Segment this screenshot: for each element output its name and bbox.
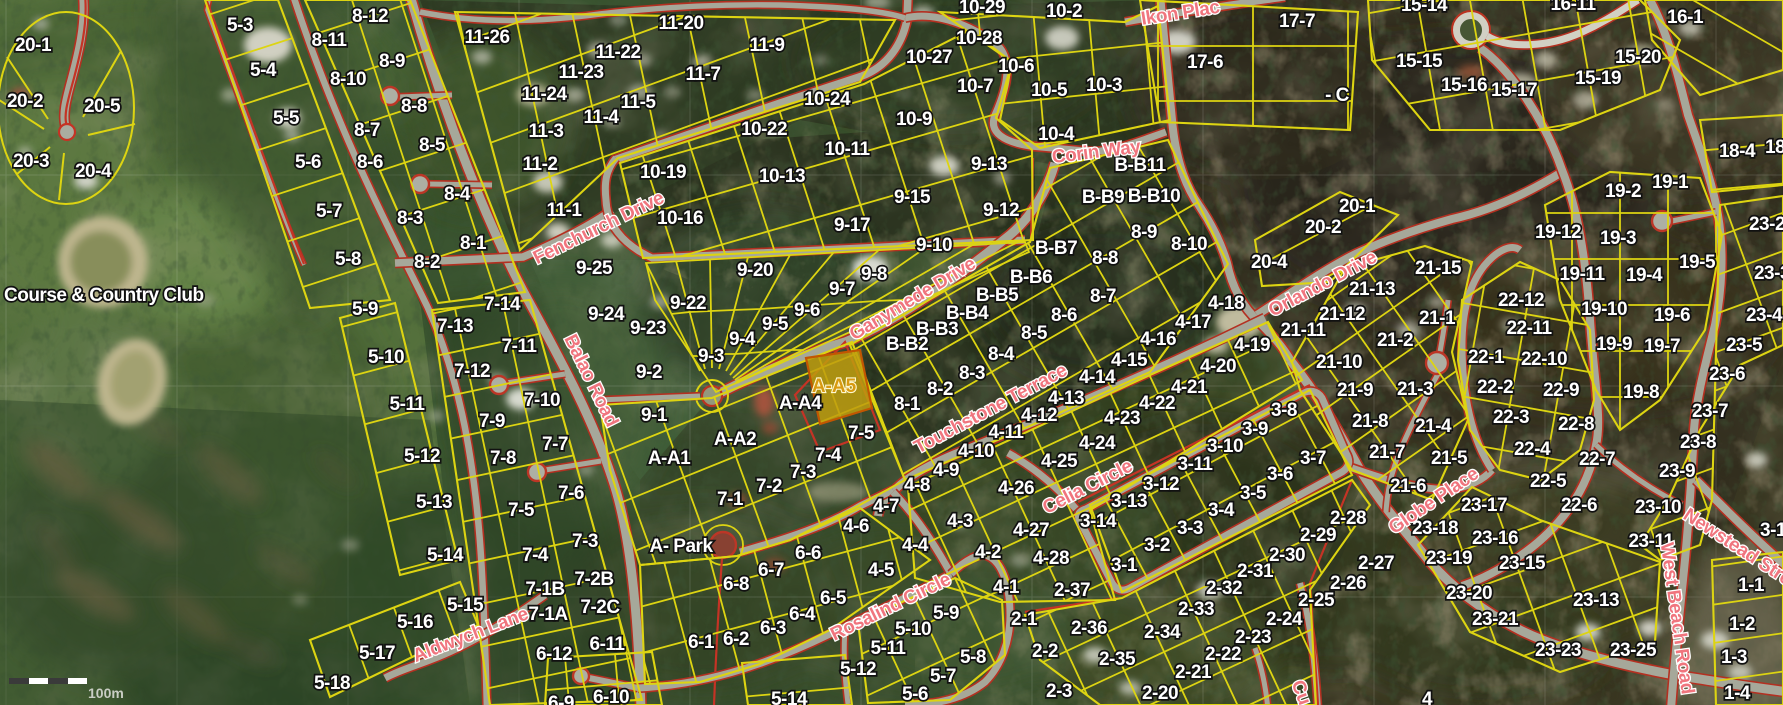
svg-text:22-5: 22-5: [1530, 471, 1567, 492]
svg-text:8-9: 8-9: [379, 51, 405, 72]
svg-text:7-2C: 7-2C: [580, 597, 620, 618]
svg-text:11-3: 11-3: [529, 121, 564, 142]
svg-text:4-20: 4-20: [1200, 356, 1236, 377]
svg-text:16-1: 16-1: [1667, 7, 1704, 28]
svg-text:19-1: 19-1: [1652, 172, 1689, 193]
svg-text:7-9: 7-9: [479, 411, 505, 432]
svg-text:4-1: 4-1: [993, 577, 1020, 598]
svg-text:7-2: 7-2: [756, 476, 782, 497]
svg-text:10-2: 10-2: [1046, 1, 1082, 22]
svg-text:5-11: 5-11: [871, 638, 907, 659]
svg-text:5-3: 5-3: [227, 15, 253, 36]
svg-text:21-7: 21-7: [1369, 442, 1405, 463]
svg-text:7-4: 7-4: [522, 545, 549, 566]
svg-text:4-5: 4-5: [868, 560, 895, 581]
svg-text:4-17: 4-17: [1175, 312, 1211, 333]
svg-text:8-6: 8-6: [357, 152, 383, 173]
svg-text:2-2: 2-2: [1032, 641, 1058, 662]
svg-text:6-7: 6-7: [758, 560, 784, 581]
svg-text:19-4: 19-4: [1626, 265, 1663, 286]
svg-text:19-3: 19-3: [1600, 228, 1636, 249]
svg-text:5-12: 5-12: [404, 446, 440, 467]
svg-text:4-14: 4-14: [1079, 367, 1116, 388]
svg-text:23-8: 23-8: [1680, 432, 1716, 453]
svg-text:B-B10: B-B10: [1128, 186, 1180, 207]
svg-text:19-6: 19-6: [1654, 305, 1690, 326]
svg-text:4-18: 4-18: [1208, 293, 1244, 314]
svg-text:5-12: 5-12: [840, 659, 876, 680]
svg-text:11-26: 11-26: [464, 27, 509, 48]
svg-text:7-11: 7-11: [502, 336, 538, 357]
svg-text:4-2: 4-2: [975, 542, 1001, 563]
svg-text:4-19: 4-19: [1234, 335, 1270, 356]
svg-text:7-3: 7-3: [572, 531, 598, 552]
svg-text:23-23: 23-23: [1535, 640, 1581, 661]
svg-text:9-1: 9-1: [641, 405, 668, 426]
svg-text:4-25: 4-25: [1041, 451, 1078, 472]
svg-text:3-2: 3-2: [1144, 535, 1170, 556]
svg-text:23-3: 23-3: [1754, 263, 1783, 284]
svg-text:1-3: 1-3: [1721, 647, 1747, 668]
svg-text:6-5: 6-5: [820, 588, 847, 609]
svg-text:9-5: 9-5: [762, 314, 789, 335]
svg-text:6-2: 6-2: [723, 629, 749, 650]
svg-text:B-B2: B-B2: [886, 334, 928, 355]
svg-text:5-5: 5-5: [273, 108, 300, 129]
svg-text:23-25: 23-25: [1610, 640, 1657, 661]
svg-text:5-7: 5-7: [930, 666, 956, 687]
svg-text:21-15: 21-15: [1415, 258, 1462, 279]
svg-text:5-9: 5-9: [933, 603, 959, 624]
svg-text:19-12: 19-12: [1535, 222, 1581, 243]
svg-text:4-28: 4-28: [1033, 548, 1069, 569]
svg-text:10-27: 10-27: [906, 47, 952, 68]
svg-text:23-7: 23-7: [1692, 401, 1728, 422]
svg-text:5-8: 5-8: [960, 647, 986, 668]
svg-text:5-15: 5-15: [447, 595, 484, 616]
svg-text:10-16: 10-16: [657, 208, 703, 229]
svg-text:22-11: 22-11: [1506, 318, 1552, 339]
svg-text:5-10: 5-10: [368, 347, 404, 368]
svg-text:23-21: 23-21: [1472, 609, 1519, 630]
svg-text:5-14: 5-14: [427, 545, 464, 566]
svg-text:9-15: 9-15: [894, 187, 931, 208]
svg-text:9-2: 9-2: [636, 362, 662, 383]
svg-text:21-6: 21-6: [1390, 476, 1426, 497]
svg-text:2-23: 2-23: [1235, 627, 1271, 648]
svg-text:10-9: 10-9: [896, 109, 932, 130]
svg-text:21-8: 21-8: [1352, 411, 1388, 432]
svg-text:9-17: 9-17: [834, 215, 870, 236]
svg-text:21-3: 21-3: [1397, 379, 1433, 400]
svg-text:2-37: 2-37: [1054, 580, 1090, 601]
svg-text:9-24: 9-24: [588, 304, 625, 325]
svg-text:8-3: 8-3: [397, 208, 423, 229]
svg-text:4-7: 4-7: [873, 496, 899, 517]
svg-text:5-4: 5-4: [250, 60, 277, 81]
svg-text:20-2: 20-2: [7, 91, 43, 112]
svg-text:23-4: 23-4: [1746, 305, 1783, 326]
svg-text:10-3: 10-3: [1086, 75, 1122, 96]
svg-text:11-7: 11-7: [686, 64, 721, 85]
svg-text:15-20: 15-20: [1615, 47, 1661, 68]
svg-text:2-32: 2-32: [1206, 578, 1242, 599]
svg-text:9-6: 9-6: [794, 300, 820, 321]
svg-text:5-7: 5-7: [316, 201, 342, 222]
svg-text:A-A1: A-A1: [648, 448, 691, 469]
svg-text:18-: 18-: [1765, 137, 1783, 158]
svg-text:22-2: 22-2: [1477, 377, 1513, 398]
svg-text:11-2: 11-2: [523, 154, 558, 175]
svg-text:20-2: 20-2: [1305, 217, 1341, 238]
svg-text:B-B7: B-B7: [1035, 238, 1077, 259]
svg-text:22-1: 22-1: [1468, 347, 1505, 368]
svg-text:1-2: 1-2: [1729, 614, 1755, 635]
svg-text:23-20: 23-20: [1446, 583, 1492, 604]
svg-text:21-5: 21-5: [1431, 448, 1468, 469]
svg-text:3-13: 3-13: [1111, 491, 1147, 512]
svg-text:2-31: 2-31: [1237, 561, 1274, 582]
svg-text:10-5: 10-5: [1031, 80, 1068, 101]
svg-text:3-1: 3-1: [1111, 555, 1138, 576]
svg-text:7-8: 7-8: [490, 448, 516, 469]
svg-text:4-8: 4-8: [904, 475, 930, 496]
svg-text:3-14: 3-14: [1080, 511, 1117, 532]
svg-text:22-12: 22-12: [1498, 290, 1544, 311]
svg-text:3-5: 3-5: [1240, 483, 1267, 504]
svg-text:22-4: 22-4: [1514, 439, 1551, 460]
svg-text:7-12: 7-12: [454, 361, 490, 382]
svg-text:A-A5: A-A5: [812, 376, 857, 397]
svg-text:8-10: 8-10: [330, 69, 366, 90]
svg-text:10-6: 10-6: [998, 56, 1034, 77]
svg-text:4-9: 4-9: [933, 460, 959, 481]
svg-text:11-24: 11-24: [521, 84, 567, 105]
svg-text:5-6: 5-6: [295, 152, 321, 173]
svg-text:8-7: 8-7: [354, 120, 380, 141]
svg-text:7-14: 7-14: [484, 294, 521, 315]
svg-text:9-20: 9-20: [737, 260, 773, 281]
svg-text:11-23: 11-23: [558, 62, 603, 83]
svg-text:23-13: 23-13: [1573, 590, 1619, 611]
svg-text:B-B9: B-B9: [1082, 187, 1124, 208]
svg-text:11-4: 11-4: [584, 107, 620, 128]
svg-text:4-23: 4-23: [1104, 408, 1140, 429]
svg-text:15-16: 15-16: [1441, 75, 1487, 96]
svg-text:6-12: 6-12: [536, 644, 572, 665]
svg-text:6-8: 6-8: [723, 574, 749, 595]
svg-text:3-9: 3-9: [1242, 419, 1268, 440]
svg-text:15-19: 15-19: [1575, 68, 1621, 89]
svg-text:- C: - C: [1325, 85, 1350, 106]
svg-text:1-1: 1-1: [1738, 575, 1765, 596]
svg-text:21-11: 21-11: [1280, 320, 1326, 341]
svg-text:15-14: 15-14: [1401, 0, 1448, 16]
svg-text:3-8: 3-8: [1271, 400, 1297, 421]
svg-text:2-3: 2-3: [1046, 681, 1072, 702]
svg-text:8-8: 8-8: [401, 96, 427, 117]
svg-text:4-6: 4-6: [843, 516, 869, 537]
svg-text:22-8: 22-8: [1558, 414, 1594, 435]
svg-text:15-15: 15-15: [1396, 51, 1443, 72]
svg-text:19-2: 19-2: [1605, 181, 1641, 202]
svg-text:11-22: 11-22: [595, 42, 640, 63]
svg-text:15-17: 15-17: [1491, 80, 1537, 101]
svg-text:10-4: 10-4: [1038, 124, 1075, 145]
svg-text:A-A2: A-A2: [714, 429, 756, 450]
svg-text:8-12: 8-12: [352, 6, 388, 27]
svg-text:17-6: 17-6: [1187, 52, 1223, 73]
svg-text:A- Park: A- Park: [649, 536, 713, 557]
svg-text:5-10: 5-10: [895, 619, 931, 640]
svg-text:8-3: 8-3: [959, 363, 985, 384]
svg-text:9-23: 9-23: [630, 318, 666, 339]
svg-text:7-1B: 7-1B: [525, 579, 564, 600]
svg-text:20-4: 20-4: [75, 161, 112, 182]
svg-text:5-6: 5-6: [902, 684, 928, 705]
svg-text:10-22: 10-22: [741, 119, 787, 140]
svg-text:2-26: 2-26: [1330, 573, 1366, 594]
svg-text:6-1: 6-1: [688, 632, 715, 653]
svg-text:7-1: 7-1: [717, 489, 744, 510]
svg-text:8-1: 8-1: [460, 233, 487, 254]
svg-text:20-1: 20-1: [15, 35, 52, 56]
svg-text:6-4: 6-4: [789, 604, 816, 625]
svg-text:4-22: 4-22: [1139, 393, 1175, 414]
svg-text:4-10: 4-10: [958, 441, 994, 462]
svg-text:7-3: 7-3: [790, 462, 816, 483]
svg-text:1-4: 1-4: [1724, 683, 1751, 704]
svg-text:21-4: 21-4: [1415, 416, 1452, 437]
svg-text:9-12: 9-12: [983, 200, 1019, 221]
svg-text:8-2: 8-2: [414, 252, 440, 273]
svg-text:8-5: 8-5: [419, 135, 446, 156]
svg-text:21-1: 21-1: [1419, 308, 1456, 329]
svg-text:8-1: 8-1: [894, 394, 921, 415]
svg-text:10-13: 10-13: [759, 166, 805, 187]
svg-text:19-7: 19-7: [1644, 336, 1680, 357]
svg-text:3-3: 3-3: [1177, 518, 1203, 539]
svg-text:3-12: 3-12: [1143, 474, 1179, 495]
svg-text:22-6: 22-6: [1561, 495, 1597, 516]
svg-text:4-3: 4-3: [947, 511, 973, 532]
svg-text:2-35: 2-35: [1099, 649, 1136, 670]
svg-text:17-7: 17-7: [1279, 11, 1315, 32]
svg-text:6-6: 6-6: [795, 543, 821, 564]
svg-text:6-10: 6-10: [593, 687, 629, 705]
svg-text:8-10: 8-10: [1171, 234, 1207, 255]
svg-text:21-2: 21-2: [1377, 330, 1413, 351]
svg-text:22-3: 22-3: [1493, 407, 1529, 428]
svg-text:2-21: 2-21: [1175, 662, 1212, 683]
svg-text:2-1: 2-1: [1011, 609, 1038, 630]
svg-text:4-24: 4-24: [1079, 433, 1116, 454]
svg-text:9-7: 9-7: [829, 279, 855, 300]
svg-text:4-21: 4-21: [1171, 377, 1208, 398]
svg-text:4-15: 4-15: [1111, 350, 1148, 371]
svg-text:22-10: 22-10: [1521, 349, 1567, 370]
svg-text:5-18: 5-18: [314, 673, 350, 694]
svg-text:10-29: 10-29: [959, 0, 1005, 18]
svg-text:7-5: 7-5: [508, 500, 535, 521]
svg-text:Course & Country Club: Course & Country Club: [4, 285, 204, 306]
svg-text:5-13: 5-13: [416, 492, 452, 513]
svg-text:5-8: 5-8: [335, 249, 361, 270]
svg-text:19-8: 19-8: [1623, 382, 1659, 403]
svg-text:23-9: 23-9: [1659, 461, 1695, 482]
svg-text:10-19: 10-19: [640, 162, 686, 183]
svg-text:4-16: 4-16: [1140, 329, 1176, 350]
svg-text:2-27: 2-27: [1358, 553, 1394, 574]
svg-text:22-9: 22-9: [1543, 380, 1579, 401]
svg-text:9-4: 9-4: [729, 329, 756, 350]
svg-text:10-7: 10-7: [957, 76, 993, 97]
svg-text:8-2: 8-2: [927, 379, 953, 400]
svg-text:2-29: 2-29: [1300, 525, 1336, 546]
svg-text:20-5: 20-5: [84, 96, 121, 117]
svg-text:22-7: 22-7: [1579, 449, 1615, 470]
svg-text:11-9: 11-9: [750, 35, 785, 56]
svg-text:19-5: 19-5: [1679, 252, 1716, 273]
svg-text:7-6: 7-6: [558, 483, 584, 504]
svg-text:3-11: 3-11: [1178, 454, 1214, 475]
svg-text:2-20: 2-20: [1142, 683, 1178, 704]
svg-text:7-13: 7-13: [437, 316, 473, 337]
svg-text:11-20: 11-20: [658, 13, 703, 34]
svg-text:21-9: 21-9: [1337, 380, 1373, 401]
svg-text:5-11: 5-11: [390, 394, 426, 415]
svg-text:4-26: 4-26: [998, 478, 1034, 499]
svg-text:18-4: 18-4: [1719, 141, 1756, 162]
svg-text:7-5: 7-5: [848, 423, 875, 444]
svg-text:23-5: 23-5: [1726, 335, 1763, 356]
svg-text:23-2: 23-2: [1749, 214, 1783, 235]
svg-text:9-8: 9-8: [861, 264, 887, 285]
svg-text:7-2B: 7-2B: [574, 569, 613, 590]
svg-text:8-11: 8-11: [312, 30, 348, 51]
svg-text:100m: 100m: [88, 685, 124, 701]
svg-text:9-10: 9-10: [916, 235, 952, 256]
svg-text:2-33: 2-33: [1178, 599, 1214, 620]
svg-text:4-12: 4-12: [1021, 405, 1057, 426]
svg-text:9-22: 9-22: [670, 293, 706, 314]
svg-text:9-13: 9-13: [971, 154, 1007, 175]
svg-text:3-7: 3-7: [1300, 448, 1326, 469]
svg-text:5-16: 5-16: [397, 612, 433, 633]
svg-text:20-3: 20-3: [13, 151, 49, 172]
svg-text:10-11: 10-11: [824, 139, 870, 160]
svg-text:6-3: 6-3: [760, 618, 786, 639]
svg-text:4-27: 4-27: [1013, 520, 1049, 541]
svg-text:3-1: 3-1: [1760, 520, 1783, 541]
svg-text:23-6: 23-6: [1709, 364, 1745, 385]
svg-text:11-5: 11-5: [621, 92, 657, 113]
svg-text:7-7: 7-7: [542, 434, 568, 455]
svg-text:4-4: 4-4: [902, 535, 929, 556]
svg-text:11-1: 11-1: [547, 200, 583, 221]
svg-text:21-10: 21-10: [1316, 352, 1362, 373]
svg-text:8-4: 8-4: [988, 344, 1015, 365]
svg-text:23-16: 23-16: [1472, 528, 1518, 549]
svg-text:8-6: 8-6: [1051, 305, 1077, 326]
svg-text:6-9: 6-9: [548, 693, 574, 705]
svg-text:23-19: 23-19: [1426, 548, 1472, 569]
svg-text:16-11: 16-11: [1550, 0, 1596, 15]
svg-text:21-12: 21-12: [1319, 304, 1365, 325]
svg-text:3-4: 3-4: [1208, 500, 1235, 521]
svg-text:3-6: 3-6: [1267, 464, 1293, 485]
svg-text:6-11: 6-11: [590, 634, 626, 655]
svg-text:20-1: 20-1: [1339, 196, 1376, 217]
svg-text:19-9: 19-9: [1596, 334, 1632, 355]
svg-text:2-36: 2-36: [1071, 618, 1107, 639]
svg-text:8-8: 8-8: [1092, 248, 1118, 269]
svg-text:23-15: 23-15: [1499, 553, 1546, 574]
svg-text:5-17: 5-17: [359, 643, 395, 664]
svg-text:19-11: 19-11: [1559, 264, 1605, 285]
svg-text:2-24: 2-24: [1266, 609, 1303, 630]
svg-text:8-5: 8-5: [1021, 323, 1048, 344]
svg-text:5-9: 5-9: [352, 299, 378, 320]
svg-text:8-7: 8-7: [1090, 286, 1116, 307]
svg-text:19-10: 19-10: [1581, 299, 1627, 320]
svg-text:5-14: 5-14: [771, 689, 808, 705]
svg-text:10-24: 10-24: [804, 89, 851, 110]
svg-text:21-13: 21-13: [1349, 279, 1395, 300]
svg-text:2-34: 2-34: [1144, 622, 1181, 643]
svg-text:10-28: 10-28: [956, 28, 1002, 49]
svg-text:7-1A: 7-1A: [528, 604, 568, 625]
svg-text:9-3: 9-3: [698, 346, 724, 367]
svg-text:20-4: 20-4: [1251, 252, 1288, 273]
svg-text:2-30: 2-30: [1269, 545, 1305, 566]
svg-text:7-4: 7-4: [815, 445, 842, 466]
svg-text:4: 4: [1422, 689, 1433, 705]
svg-text:4-11: 4-11: [989, 422, 1025, 443]
svg-text:23-17: 23-17: [1461, 495, 1507, 516]
svg-text:8-9: 8-9: [1131, 222, 1157, 243]
svg-text:7-10: 7-10: [524, 390, 560, 411]
svg-text:23-10: 23-10: [1635, 497, 1681, 518]
svg-text:9-25: 9-25: [576, 258, 613, 279]
svg-text:8-4: 8-4: [444, 184, 471, 205]
